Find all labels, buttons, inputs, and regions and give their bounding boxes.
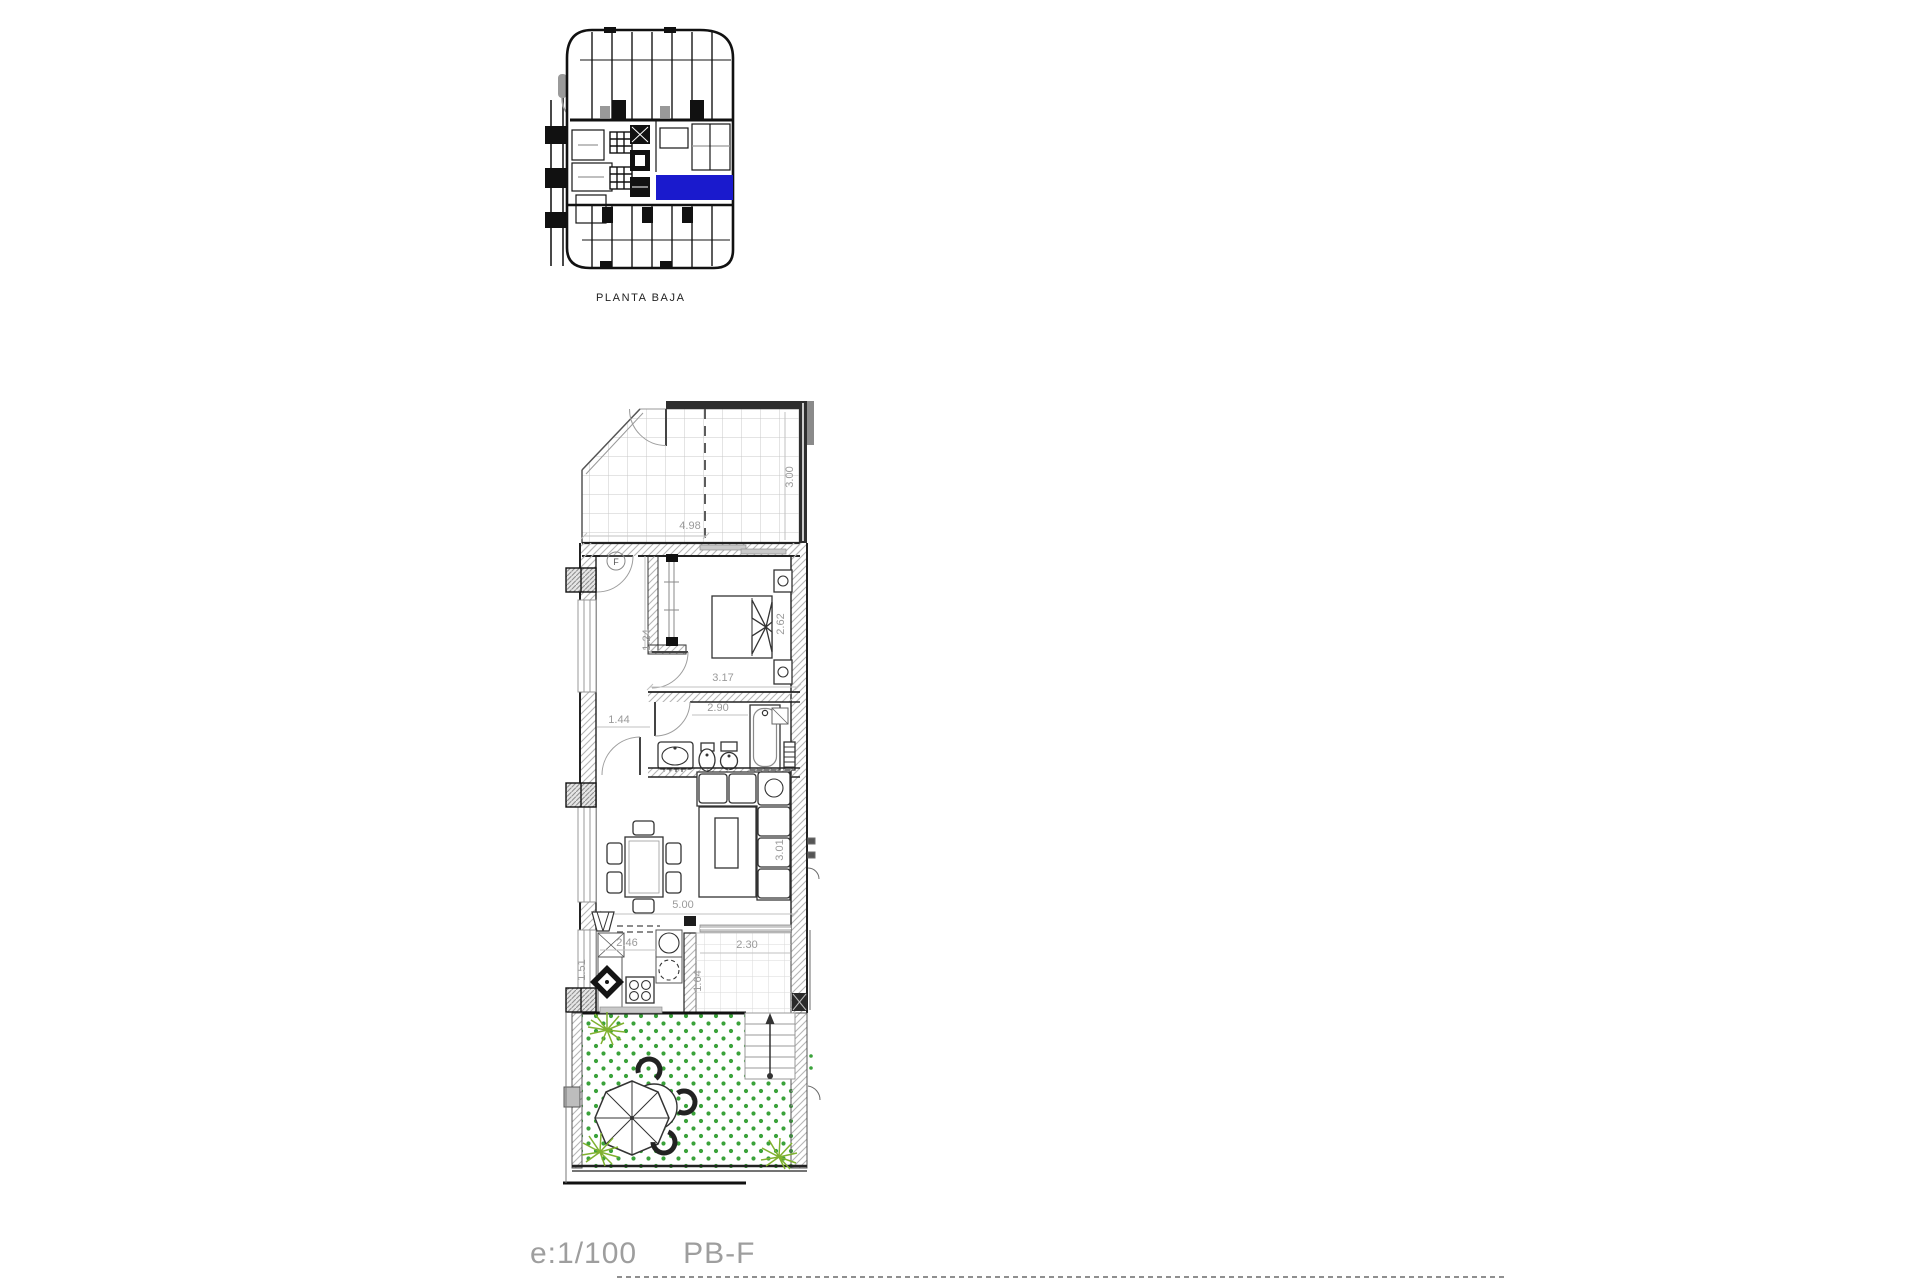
neighbour-fragments [808, 838, 820, 1100]
bedroom: 1.24 3.17 [641, 554, 801, 690]
terrace: 4.98 3.00 [581, 401, 814, 543]
plan-code-label: PB-F [683, 1237, 755, 1271]
terrace-sliding-window [700, 545, 746, 550]
nightstand-bottom [774, 660, 792, 684]
hallway: F 1.44 [597, 552, 650, 775]
hall-living-door [602, 737, 640, 775]
dim-kitchen-depth: 1.51 [576, 959, 588, 980]
wardrobe [648, 554, 686, 654]
dim-bedroom-width: 3.17 [712, 672, 733, 684]
dim-stairs-depth: 1.64 [692, 970, 704, 991]
double-bed [712, 596, 772, 658]
drawing-footer: e:1/100 PB-F [530, 1237, 755, 1271]
towel-radiator [784, 742, 795, 770]
dining-table [607, 821, 681, 913]
parasol [595, 1081, 669, 1155]
garden [564, 1007, 813, 1171]
bathroom: 2.90 [648, 692, 800, 772]
dim-bathroom-width: 2.90 [707, 702, 728, 714]
dim-kitchen-width: 2.46 [616, 937, 637, 949]
stair-cores [630, 125, 650, 197]
living-room: 5.00 3.01 [595, 768, 800, 917]
dim-hall-width: 1.44 [608, 714, 629, 726]
overhead-cabinets-dashed [617, 926, 660, 932]
site-entry-ramp [558, 74, 567, 98]
sofa [697, 772, 790, 900]
site-plan-graphics [545, 27, 733, 268]
site-plan-thumbnail [540, 20, 750, 310]
dim-bedroom-depth: 2.62 [775, 613, 787, 634]
floor-plan: 4.98 3.00 [540, 390, 840, 1200]
garden-sliding-door [600, 1007, 662, 1013]
dim-stairs-width: 2.30 [736, 939, 757, 951]
coffee-table [715, 818, 738, 868]
dim-wardrobe-depth: 1.24 [641, 629, 653, 650]
toilet [721, 742, 738, 770]
neighbour-wall-fragment [807, 401, 814, 445]
bathroom-door [655, 702, 690, 736]
hall-f-symbol: F [613, 557, 619, 567]
cropped-drawing-edge [617, 1276, 1505, 1278]
scale-label: e:1/100 [530, 1237, 637, 1271]
dim-living-depth: 3.01 [774, 839, 786, 860]
nightstand-top [774, 570, 792, 592]
bidet [699, 743, 715, 771]
kitchen-appliances [656, 930, 682, 983]
selected-unit-highlight [656, 175, 733, 200]
garden-stairs [745, 1013, 795, 1079]
cooktop [626, 977, 654, 1003]
dim-living-width: 5.00 [672, 899, 693, 911]
dim-terrace-width: 4.98 [679, 520, 700, 532]
site-plan-caption: PLANTA BAJA [596, 292, 686, 304]
bedroom-door [652, 652, 688, 688]
dim-terrace-depth: 3.00 [784, 466, 796, 487]
page: PLANTA BAJA [0, 0, 1920, 1280]
stair-landing: 2.30 1.64 [692, 925, 791, 1013]
